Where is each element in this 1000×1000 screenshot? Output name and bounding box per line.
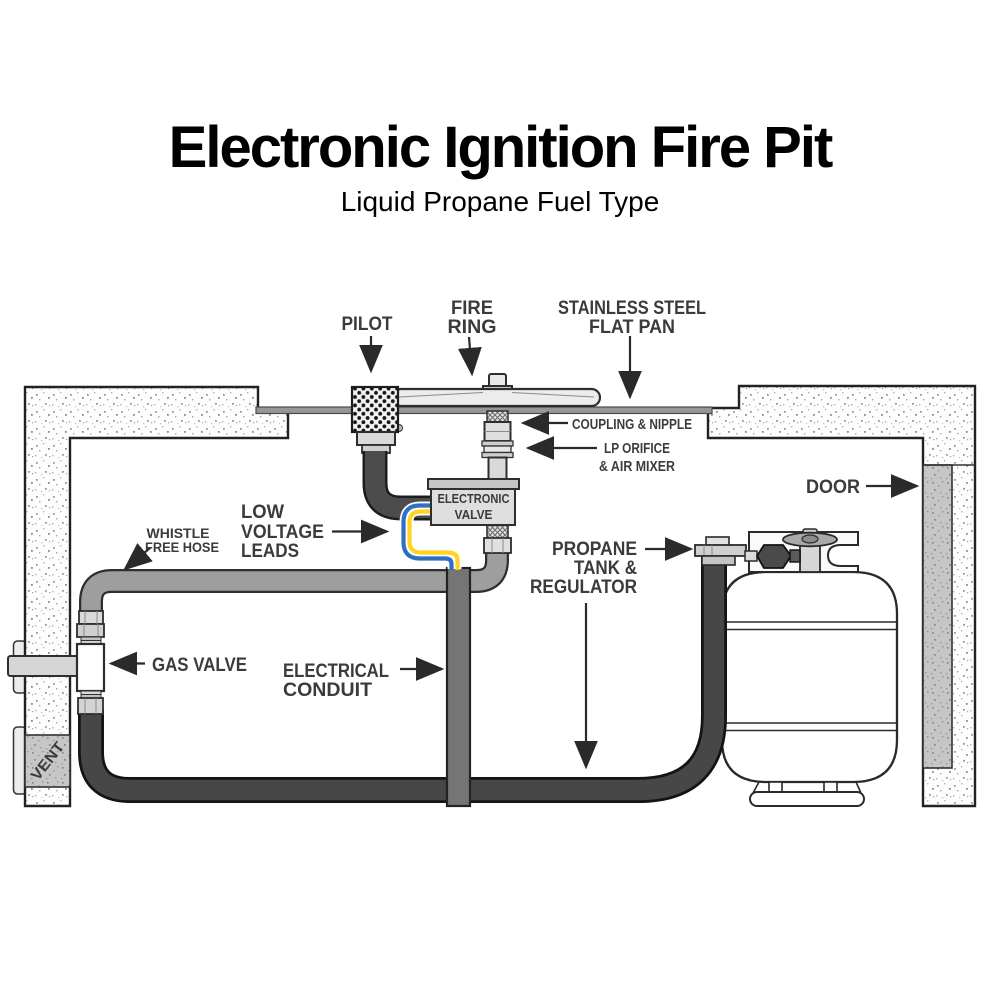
diagram-page: Electronic Ignition Fire Pit Liquid Prop… — [0, 0, 1000, 1000]
fire-pit-diagram: ELECTRONIC VALVE PILOT FIRE RING STAINLE… — [0, 0, 1000, 1000]
electronic-valve-label-line1: ELECTRONIC — [438, 491, 511, 506]
valve-top-lip — [428, 479, 519, 489]
pilot-base — [357, 432, 395, 445]
gas-valve-lower-nut — [78, 698, 103, 714]
tank-handwheel-hub — [802, 535, 818, 543]
riser-tube — [489, 458, 507, 482]
label-pilot: PILOT — [342, 313, 393, 335]
arrow-fire-ring — [469, 337, 472, 374]
burner-gas-column — [482, 411, 513, 482]
label-electrical-2: CONDUIT — [283, 679, 372, 701]
label-low-voltage-3: LEADS — [241, 540, 299, 562]
label-low-voltage-1: LOW — [241, 501, 285, 523]
electronic-valve-label-line2: VALVE — [455, 507, 493, 522]
regulator-bulb — [757, 545, 791, 568]
tank-body — [722, 572, 897, 782]
valve-outlet-fitting — [484, 524, 511, 553]
air-mixer-band — [484, 446, 511, 453]
pilot-burner — [352, 387, 403, 453]
regulator-outlet-ring — [790, 550, 800, 562]
fire-ring-body — [393, 389, 600, 406]
tank-foot-ring — [750, 792, 864, 806]
propane-tank — [722, 529, 897, 806]
threaded-nipple — [487, 411, 508, 422]
label-whistle-2: FREE HOSE — [145, 540, 219, 555]
lp-orifice-ring — [482, 441, 513, 446]
outlet-hex-nut — [484, 538, 511, 553]
label-lp-orifice-2: & AIR MIXER — [599, 459, 675, 475]
pol-flat-bar — [695, 545, 746, 556]
label-gas-valve: GAS VALVE — [152, 654, 247, 676]
label-whistle-1: WHISTLE — [147, 526, 210, 541]
gas-valve-flare-nut — [79, 611, 103, 624]
pol-elbow — [702, 556, 735, 565]
pilot-supply-tube — [375, 451, 436, 508]
pilot-head — [352, 387, 398, 432]
gas-valve-nut — [77, 624, 104, 637]
electronic-valve: ELECTRONIC VALVE — [428, 479, 519, 525]
label-door: DOOR — [806, 476, 860, 498]
label-fire-ring-2: RING — [448, 316, 497, 338]
gas-valve-key — [8, 656, 78, 676]
label-propane-3: REGULATOR — [530, 576, 637, 598]
door-panel — [923, 465, 952, 768]
tank-valve-stem — [800, 545, 820, 572]
label-flat-pan-2: FLAT PAN — [589, 316, 675, 338]
fire-ring — [393, 374, 600, 406]
regulator-connector — [745, 551, 757, 561]
braided-connector — [487, 524, 508, 539]
label-coupling: COUPLING & NIPPLE — [572, 417, 692, 433]
electrical-conduit — [447, 568, 470, 806]
flat-pan — [256, 407, 712, 414]
label-lp-orifice-1: LP ORIFICE — [604, 441, 670, 457]
gas-valve-body — [77, 644, 104, 691]
